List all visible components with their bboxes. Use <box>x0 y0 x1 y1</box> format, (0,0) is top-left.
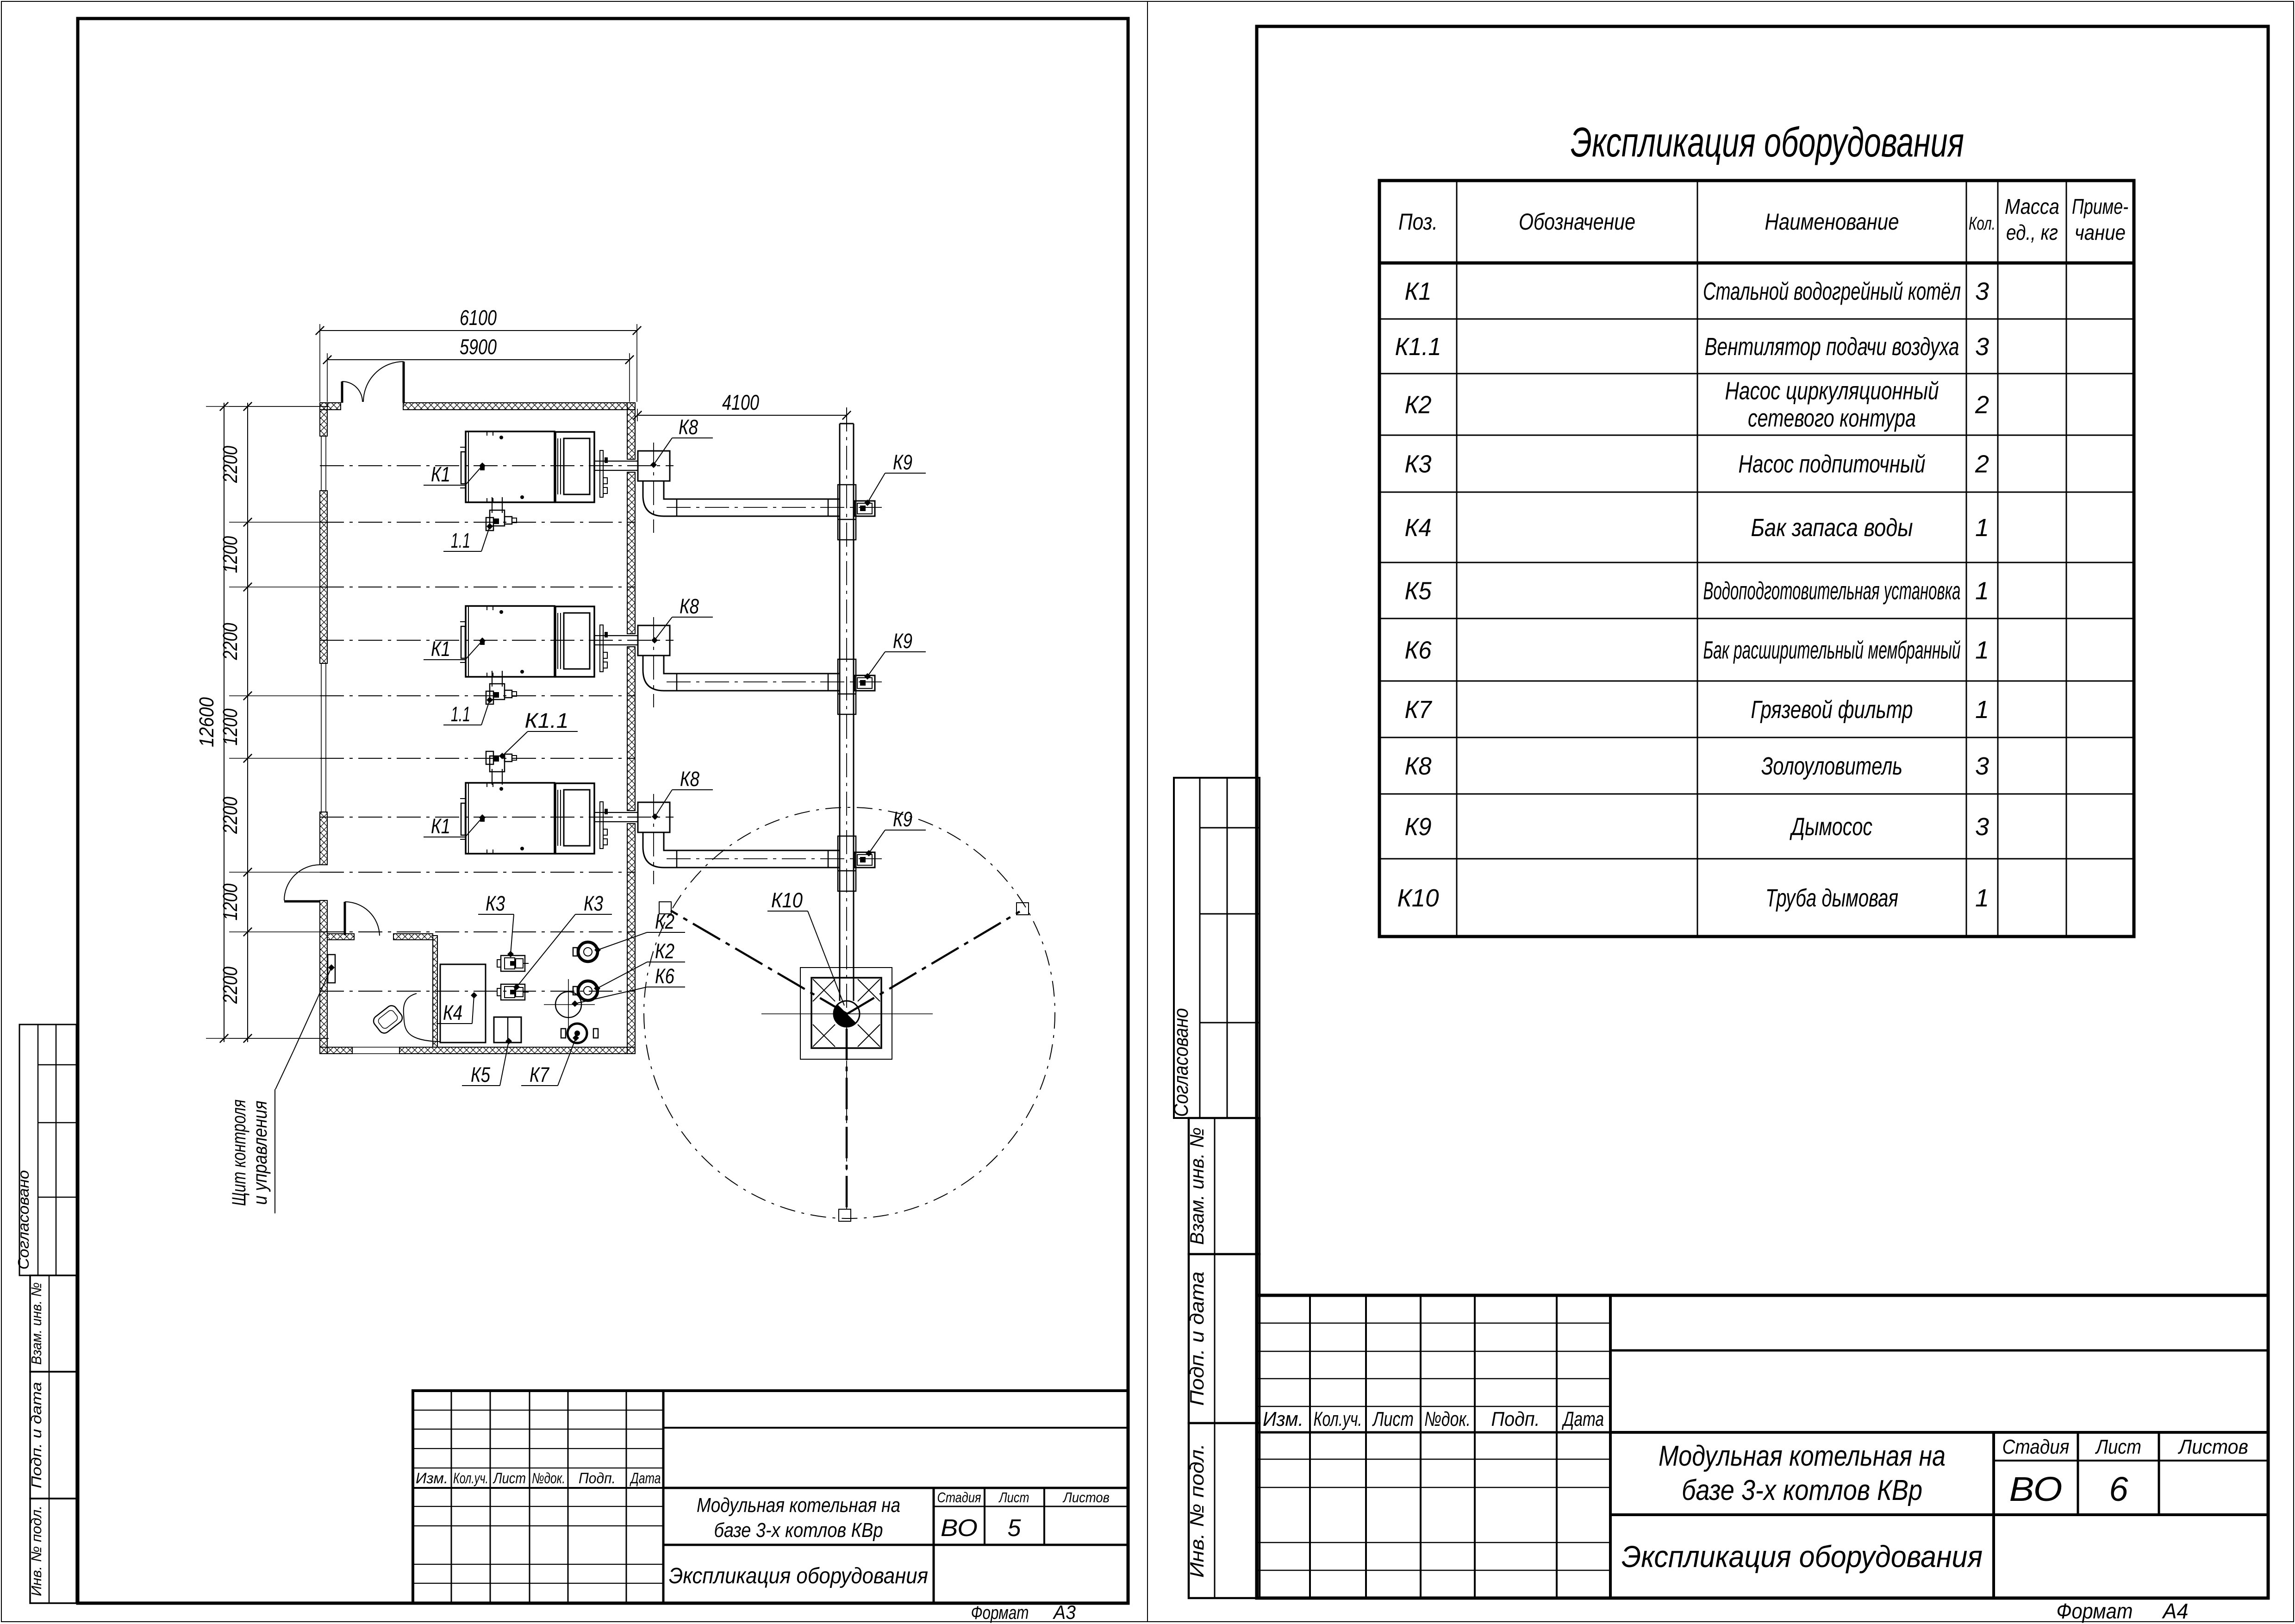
svg-text:2: 2 <box>1975 450 1989 478</box>
svg-text:Щит контроля: Щит контроля <box>228 1099 249 1206</box>
svg-text:К9: К9 <box>893 450 912 474</box>
svg-text:К10: К10 <box>1397 884 1439 912</box>
svg-text:Модульная котельная на: Модульная котельная на <box>1659 1440 1946 1472</box>
svg-text:Приме-: Приме- <box>2072 194 2128 219</box>
svg-text:Листов: Листов <box>1062 1489 1110 1505</box>
svg-text:Обозначение: Обозначение <box>1519 209 1635 235</box>
svg-text:2200: 2200 <box>219 446 242 483</box>
svg-text:К1: К1 <box>1405 278 1432 306</box>
svg-text:3: 3 <box>1975 278 1989 306</box>
svg-text:К1.1: К1.1 <box>1395 333 1441 361</box>
svg-text:Изм.: Изм. <box>416 1470 448 1487</box>
svg-text:1.1: 1.1 <box>451 702 470 726</box>
svg-text:К7: К7 <box>1405 696 1433 724</box>
svg-text:Инв. № подл.: Инв. № подл. <box>28 1505 44 1596</box>
svg-text:К1.1: К1.1 <box>525 709 569 732</box>
svg-text:Кол.уч.: Кол.уч. <box>453 1470 488 1487</box>
svg-text:Бак запаса воды: Бак запаса воды <box>1751 514 1913 542</box>
svg-text:Бак расширительный мембранный: Бак расширительный мембранный <box>1703 637 1961 664</box>
svg-text:Дымосос: Дымосос <box>1790 813 1872 841</box>
svg-text:К10: К10 <box>771 888 803 912</box>
svg-text:ВО: ВО <box>2009 1470 2063 1508</box>
svg-text:Стадия: Стадия <box>937 1489 981 1505</box>
svg-text:2200: 2200 <box>219 967 242 1004</box>
svg-text:базе 3-х котлов КВр: базе 3-х котлов КВр <box>1682 1474 1922 1506</box>
svg-text:Формат: Формат <box>971 1603 1029 1623</box>
svg-text:1: 1 <box>1975 696 1989 724</box>
svg-text:Кол.: Кол. <box>1969 213 1996 234</box>
svg-text:Лист: Лист <box>1372 1408 1414 1430</box>
svg-text:5: 5 <box>1008 1515 1022 1542</box>
svg-text:2200: 2200 <box>219 623 242 660</box>
svg-text:К5: К5 <box>471 1063 491 1087</box>
svg-text:1: 1 <box>1975 637 1989 664</box>
svg-text:1: 1 <box>1975 884 1989 912</box>
svg-text:Изм.: Изм. <box>1263 1408 1303 1430</box>
svg-text:К1: К1 <box>431 637 450 661</box>
svg-text:Согласовано: Согласовано <box>15 1170 32 1270</box>
svg-text:К6: К6 <box>1405 637 1432 664</box>
svg-text:и управления: и управления <box>249 1101 271 1205</box>
svg-text:К2: К2 <box>655 910 674 933</box>
svg-text:К8: К8 <box>1405 752 1432 780</box>
svg-text:Дата: Дата <box>1561 1408 1604 1430</box>
svg-text:2: 2 <box>1975 391 1989 419</box>
svg-text:Стальной водогрейный котёл: Стальной водогрейный котёл <box>1703 278 1961 306</box>
svg-text:К8: К8 <box>679 415 698 439</box>
svg-text:6: 6 <box>2109 1470 2128 1508</box>
svg-text:Водоподготовительная установка: Водоподготовительная установка <box>1703 577 1961 605</box>
svg-text:Экспликация оборудования: Экспликация оборудования <box>669 1564 928 1588</box>
svg-text:4100: 4100 <box>722 390 759 414</box>
svg-text:Масса: Масса <box>2005 194 2059 219</box>
svg-text:К8: К8 <box>680 767 699 791</box>
svg-text:Экспликация оборудования: Экспликация оборудования <box>1571 119 1964 166</box>
svg-text:5900: 5900 <box>460 335 497 359</box>
svg-text:12600: 12600 <box>195 697 218 747</box>
svg-text:Лист: Лист <box>2095 1436 2141 1458</box>
svg-text:чание: чание <box>2075 220 2126 244</box>
svg-text:К3: К3 <box>584 892 603 915</box>
svg-text:1200: 1200 <box>219 883 242 920</box>
svg-text:Лист: Лист <box>493 1470 526 1487</box>
svg-text:Подп. и дата: Подп. и дата <box>1186 1272 1208 1406</box>
svg-text:Труба дымовая: Труба дымовая <box>1765 884 1898 912</box>
svg-text:1: 1 <box>1975 577 1989 605</box>
svg-text:К1: К1 <box>431 814 450 838</box>
svg-text:К1: К1 <box>431 462 450 486</box>
svg-text:Согласовано: Согласовано <box>1170 1008 1192 1117</box>
svg-text:3: 3 <box>1975 752 1989 780</box>
svg-text:Поз.: Поз. <box>1398 209 1438 235</box>
svg-text:К2: К2 <box>655 939 674 963</box>
svg-text:№док.: №док. <box>1424 1408 1471 1430</box>
svg-text:Экспликация оборудования: Экспликация оборудования <box>1621 1539 1983 1574</box>
svg-text:Листов: Листов <box>2177 1436 2248 1458</box>
svg-text:А3: А3 <box>1052 1601 1076 1623</box>
svg-text:1200: 1200 <box>219 708 242 745</box>
svg-text:1.1: 1.1 <box>451 529 470 552</box>
svg-text:К7: К7 <box>530 1063 550 1087</box>
svg-text:К9: К9 <box>1405 813 1432 841</box>
svg-text:Вентилятор подачи воздуха: Вентилятор подачи воздуха <box>1705 333 1959 361</box>
svg-text:сетевого контура: сетевого контура <box>1748 405 1916 432</box>
svg-text:ед., кг: ед., кг <box>2006 220 2058 244</box>
svg-text:К6: К6 <box>655 964 675 988</box>
svg-text:Взам. инв. №: Взам. инв. № <box>28 1282 44 1365</box>
svg-text:Подп.: Подп. <box>579 1470 616 1487</box>
svg-text:Формат: Формат <box>2057 1599 2133 1623</box>
svg-text:К4: К4 <box>1405 514 1432 542</box>
svg-text:Кол.уч.: Кол.уч. <box>1314 1408 1362 1430</box>
svg-text:Взам. инв. №: Взам. инв. № <box>1186 1127 1208 1245</box>
svg-text:К9: К9 <box>893 629 912 653</box>
svg-text:Золоуловитель: Золоуловитель <box>1761 752 1902 780</box>
svg-text:К8: К8 <box>680 594 699 618</box>
svg-text:Грязевой фильтр: Грязевой фильтр <box>1751 696 1913 724</box>
svg-text:К4: К4 <box>443 1001 462 1024</box>
svg-text:А4: А4 <box>2162 1599 2189 1623</box>
svg-text:К3: К3 <box>1405 450 1432 478</box>
svg-text:Лист: Лист <box>998 1489 1029 1505</box>
svg-text:Насос подпиточный: Насос подпиточный <box>1739 450 1926 478</box>
svg-text:Инв. № подл.: Инв. № подл. <box>1186 1443 1208 1578</box>
svg-text:базе 3-х котлов КВр: базе 3-х котлов КВр <box>714 1519 883 1542</box>
svg-text:3: 3 <box>1975 333 1989 361</box>
svg-text:Наименование: Наименование <box>1765 209 1899 235</box>
svg-text:2200: 2200 <box>219 797 242 834</box>
svg-text:3: 3 <box>1975 813 1989 841</box>
svg-text:К3: К3 <box>486 892 505 915</box>
svg-text:№док.: №док. <box>532 1470 565 1487</box>
svg-text:Подп.: Подп. <box>1491 1408 1540 1430</box>
svg-text:К2: К2 <box>1405 391 1432 419</box>
svg-text:Дата: Дата <box>630 1470 661 1487</box>
svg-text:К5: К5 <box>1405 577 1432 605</box>
svg-text:Стадия: Стадия <box>2002 1436 2070 1458</box>
svg-text:6100: 6100 <box>460 306 497 330</box>
svg-text:Подп. и дата: Подп. и дата <box>28 1382 44 1488</box>
svg-text:1: 1 <box>1975 514 1989 542</box>
svg-text:ВО: ВО <box>941 1515 978 1542</box>
svg-text:Модульная котельная на: Модульная котельная на <box>697 1494 900 1517</box>
svg-text:К9: К9 <box>893 807 912 831</box>
svg-text:1200: 1200 <box>219 536 242 573</box>
svg-text:Насос циркуляционный: Насос циркуляционный <box>1725 377 1939 405</box>
